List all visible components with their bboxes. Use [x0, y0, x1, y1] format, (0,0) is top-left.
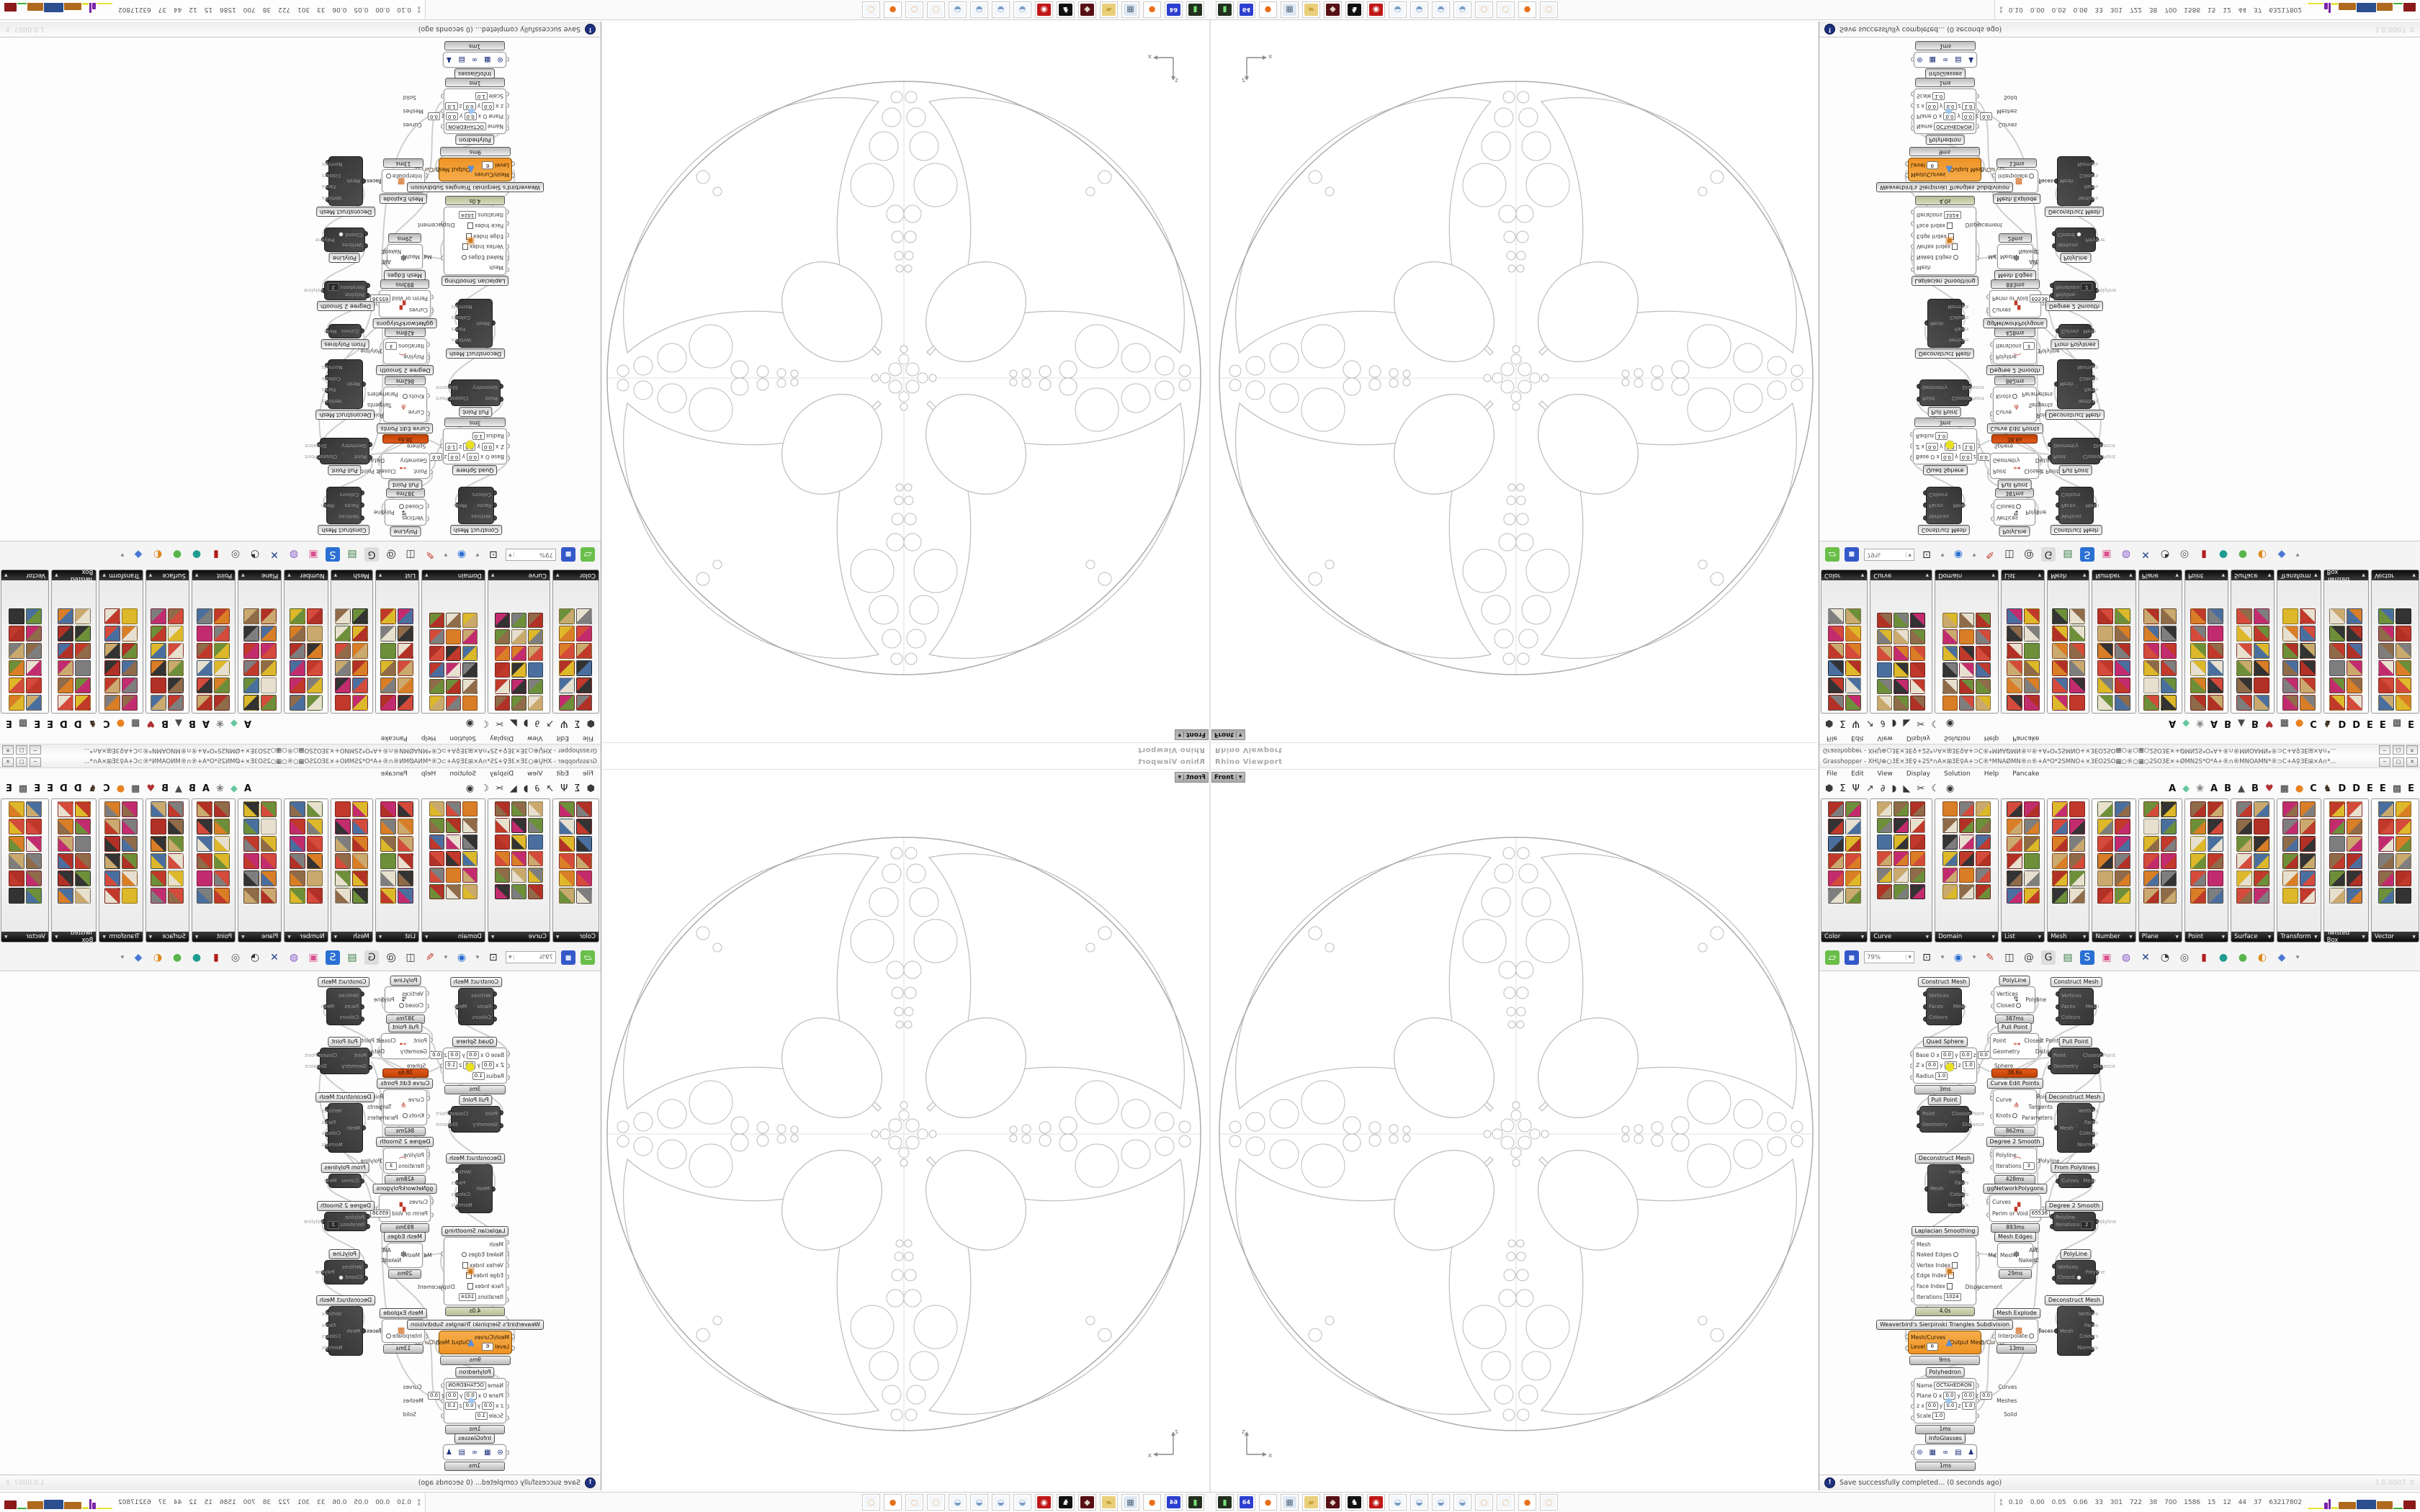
component-icon[interactable]: [214, 801, 230, 817]
component-icon[interactable]: [335, 608, 351, 624]
ribbon-tab-icon-19[interactable]: ▦: [131, 784, 140, 793]
component-icon[interactable]: [58, 608, 73, 624]
component-icon[interactable]: [1828, 836, 1844, 852]
component-icon[interactable]: [398, 819, 413, 834]
component-icon[interactable]: [1845, 626, 1861, 642]
component-icon[interactable]: [2007, 626, 2022, 642]
ribbon-tab-icon-6[interactable]: ◣: [1903, 784, 1910, 793]
component-icon[interactable]: [168, 819, 184, 834]
node-label[interactable]: Degree 2 Smooth: [1986, 365, 2043, 375]
node-label[interactable]: Deconstruct Mesh: [2045, 1092, 2104, 1102]
ribbon-tab-icon-2[interactable]: Ψ: [560, 719, 568, 728]
toggle-dot[interactable]: [399, 1003, 404, 1008]
component-icon[interactable]: [261, 660, 277, 676]
ribbon-tab-icon-26[interactable]: E: [2380, 719, 2386, 728]
ribbon-tab-icon-9[interactable]: ◉: [1946, 784, 1954, 793]
value-chip[interactable]: 3: [385, 343, 397, 351]
value-chip[interactable]: 1.0: [445, 1061, 457, 1069]
component-icon[interactable]: [2007, 608, 2022, 624]
preview-custom-icon[interactable]: ◆: [131, 950, 145, 965]
component-icon[interactable]: [290, 801, 305, 817]
taskbar-app-calculator[interactable]: ▦: [1121, 1494, 1139, 1511]
component-icon[interactable]: [261, 836, 277, 852]
component-icon[interactable]: [2347, 678, 2362, 693]
ribbon-tab-icon-16[interactable]: ▲: [175, 719, 182, 728]
value-chip[interactable]: 1.0: [1963, 443, 1975, 451]
component-icon[interactable]: [2300, 608, 2316, 624]
galapagos-icon[interactable]: ✕: [2138, 950, 2153, 965]
camera-icon[interactable]: ◔: [2158, 950, 2172, 965]
component-icon[interactable]: [462, 868, 478, 883]
component-icon[interactable]: [261, 819, 277, 834]
component-icon[interactable]: [462, 696, 478, 711]
component-icon[interactable]: [243, 801, 259, 817]
menu-item-help[interactable]: Help: [421, 770, 436, 778]
title-bar[interactable]: Grasshopper - XHŲ⊕○3E×3E♀+2S*∩A×⊞3E♀A+⊃C…: [1819, 756, 2420, 768]
ribbon-tab-icon-7[interactable]: ✂: [1917, 719, 1924, 728]
component-icon[interactable]: [1959, 679, 1974, 694]
component-icon[interactable]: [2208, 836, 2223, 852]
component-icon[interactable]: [2208, 801, 2223, 817]
zoom-extents-icon[interactable]: ⊡: [1919, 548, 1934, 562]
component-icon[interactable]: [1976, 646, 1991, 661]
component-icon[interactable]: [1942, 679, 1958, 694]
donut-icon[interactable]: ◎: [228, 548, 243, 562]
component-icon[interactable]: [2024, 801, 2040, 817]
component-icon[interactable]: [2254, 888, 2269, 904]
value-chip[interactable]: 3: [385, 1162, 397, 1170]
component-icon[interactable]: [104, 678, 120, 693]
component-icon[interactable]: [352, 853, 368, 869]
component-icon[interactable]: [446, 613, 461, 628]
component-icon[interactable]: [2329, 888, 2345, 904]
component-icon[interactable]: [2190, 801, 2206, 817]
ribbon-tab-icon-5[interactable]: ◗: [524, 719, 529, 728]
node-label[interactable]: Laplacian Smoothing: [1912, 276, 1979, 286]
component-icon[interactable]: [1877, 662, 1892, 678]
component-icon[interactable]: [26, 801, 42, 817]
component-icon[interactable]: [2161, 888, 2177, 904]
component-icon[interactable]: [168, 695, 184, 711]
infoglasses-icon[interactable]: ▦: [482, 54, 493, 66]
component-icon[interactable]: [168, 660, 184, 676]
component-icon[interactable]: [1942, 851, 1958, 866]
node-label[interactable]: From Polylines: [2051, 1163, 2099, 1173]
component-icon[interactable]: [307, 819, 323, 834]
preview-wire-icon[interactable]: ●: [2236, 548, 2250, 562]
sketch-pen-icon[interactable]: ✎: [1983, 950, 1997, 965]
component-icon[interactable]: [1910, 834, 1925, 850]
node-quad-sphere[interactable]: BaseO x0.0y0.0z0.0Z x0.0y0.0z1.0Radius1.…: [443, 428, 507, 464]
dropdown-caret-icon[interactable]: ▾: [442, 548, 449, 562]
component-icon[interactable]: [1828, 801, 1844, 817]
component-icon[interactable]: [1959, 662, 1974, 678]
balloon-icon[interactable]: ◍: [287, 950, 301, 965]
component-icon[interactable]: [429, 834, 444, 850]
component-icon[interactable]: [2143, 888, 2159, 904]
component-icon[interactable]: [2069, 870, 2085, 886]
component-icon[interactable]: [528, 884, 543, 899]
component-icon[interactable]: [307, 801, 323, 817]
component-icon[interactable]: [2143, 626, 2159, 642]
taskbar-app-paint-4[interactable]: ◒: [1453, 1494, 1471, 1511]
component-icon[interactable]: [2329, 853, 2345, 869]
component-icon[interactable]: [261, 608, 277, 624]
ribbon-tab-icon-14[interactable]: A: [2210, 719, 2218, 728]
ribbon-tab-icon-22[interactable]: ♞: [89, 784, 97, 793]
component-icon[interactable]: [1942, 834, 1958, 850]
component-icon[interactable]: [2254, 836, 2269, 852]
component-icon[interactable]: [335, 801, 351, 817]
component-icon[interactable]: [2378, 853, 2394, 869]
component-icon[interactable]: [58, 801, 73, 817]
palette-panel-label[interactable]: Point▼: [192, 570, 235, 580]
component-icon[interactable]: [2097, 695, 2113, 711]
component-icon[interactable]: [1877, 613, 1892, 628]
component-icon[interactable]: [2161, 870, 2177, 886]
component-icon[interactable]: [528, 801, 543, 816]
ribbon-tab-icon-15[interactable]: B: [2224, 719, 2231, 728]
gha-icon[interactable]: G: [2041, 548, 2056, 562]
taskbar-app-blender-1[interactable]: ◌: [927, 1, 945, 18]
component-icon[interactable]: [2347, 660, 2362, 676]
component-icon[interactable]: [352, 643, 368, 659]
taskbar-app-firefox[interactable]: ●: [1259, 1, 1277, 18]
ribbon-tab-icon-11[interactable]: A: [2169, 784, 2176, 793]
component-icon[interactable]: [1828, 819, 1844, 834]
ribbon-tab-icon-14[interactable]: A: [202, 719, 210, 728]
value-chip[interactable]: 0.0: [1926, 443, 1938, 451]
component-icon[interactable]: [576, 888, 592, 904]
component-icon[interactable]: [1845, 660, 1861, 676]
value-chip[interactable]: 0.0: [1962, 112, 1974, 120]
component-icon[interactable]: [261, 695, 277, 711]
node-label[interactable]: Pull Point: [2058, 1037, 2092, 1047]
component-icon[interactable]: [511, 801, 526, 816]
node-weaverbird-s-sierpinski-triangles-subdivision[interactable]: Mesh/CurvesLevel6Output Mesh/Curves: [1908, 158, 1981, 181]
component-icon[interactable]: [1976, 851, 1991, 866]
component-icon[interactable]: [2143, 801, 2159, 817]
component-icon[interactable]: [1976, 613, 1991, 628]
taskbar-app-drive[interactable]: ▮: [1216, 1494, 1234, 1511]
component-icon[interactable]: [1959, 818, 1974, 833]
component-icon[interactable]: [380, 870, 396, 886]
component-icon[interactable]: [398, 626, 413, 642]
taskbar-app-calculator[interactable]: ▦: [1121, 1, 1139, 18]
palette-panel-label[interactable]: Plane▼: [238, 932, 281, 942]
component-icon[interactable]: [2347, 695, 2362, 711]
gha-icon[interactable]: G: [2041, 950, 2056, 965]
galapagos-icon[interactable]: ✕: [267, 950, 282, 965]
component-icon[interactable]: [2097, 870, 2113, 886]
component-icon[interactable]: [214, 819, 230, 834]
component-icon[interactable]: [58, 888, 73, 904]
component-icon[interactable]: [1894, 613, 1909, 628]
component-icon[interactable]: [2396, 608, 2411, 624]
component-icon[interactable]: [75, 678, 91, 693]
component-icon[interactable]: [1942, 646, 1958, 661]
component-icon[interactable]: [1894, 851, 1909, 866]
value-chip[interactable]: 0.0: [1962, 1392, 1974, 1400]
component-icon[interactable]: [2378, 888, 2394, 904]
component-icon[interactable]: [2052, 870, 2068, 886]
node-label[interactable]: Mesh Explode: [380, 1308, 427, 1318]
component-icon[interactable]: [2190, 888, 2206, 904]
menu-item-edit[interactable]: Edit: [1851, 770, 1863, 778]
component-icon[interactable]: [2190, 626, 2206, 642]
rhino-viewport[interactable]: Rhino Viewport Front ▼ x z: [1210, 20, 1819, 756]
component-icon[interactable]: [528, 646, 543, 661]
node-label[interactable]: Weaverbird's Sierpinski Triangles Subdiv…: [407, 182, 544, 192]
maximize-button[interactable]: □: [16, 757, 27, 767]
component-icon[interactable]: [2396, 888, 2411, 904]
infoglasses-icon[interactable]: ⊜: [1914, 1446, 1925, 1458]
ribbon-tab-icon-24[interactable]: D: [2352, 719, 2360, 728]
taskbar-app-blender-2[interactable]: ◌: [1497, 1, 1515, 18]
component-icon[interactable]: [2378, 643, 2394, 659]
component-icon[interactable]: [335, 819, 351, 834]
component-icon[interactable]: [2378, 836, 2394, 852]
component-icon[interactable]: [2396, 678, 2411, 693]
open-file-icon[interactable]: ▱: [1825, 950, 1839, 965]
palette-panel-label[interactable]: Domain▼: [422, 932, 485, 942]
component-icon[interactable]: [26, 643, 42, 659]
taskbar-app-settings[interactable]: ◉: [1035, 1, 1053, 18]
menu-item-file[interactable]: File: [583, 770, 593, 778]
component-icon[interactable]: [122, 643, 138, 659]
menu-item-view[interactable]: View: [527, 734, 542, 742]
preview-off-icon[interactable]: ●: [2216, 950, 2231, 965]
component-icon[interactable]: [26, 626, 42, 642]
component-icon[interactable]: [2190, 853, 2206, 869]
component-icon[interactable]: [168, 678, 184, 693]
sketch-pen-icon[interactable]: ✎: [423, 548, 437, 562]
node-label[interactable]: Pull Point: [459, 407, 493, 417]
node-label[interactable]: Laplacian Smoothing: [442, 1226, 509, 1236]
component-icon[interactable]: [576, 853, 592, 869]
node-label[interactable]: Curve Edit Points: [1986, 1079, 2043, 1089]
value-chip[interactable]: 1024: [1944, 1293, 1961, 1301]
component-icon[interactable]: [2115, 626, 2130, 642]
infoglasses-icon[interactable]: ♟: [1966, 1446, 1976, 1458]
component-icon[interactable]: [243, 836, 259, 852]
component-icon[interactable]: [290, 660, 305, 676]
node-weaverbird-s-sierpinski-triangles-subdivision[interactable]: Mesh/CurvesLevel6Output Mesh/Curves: [439, 158, 512, 181]
preview-off-icon[interactable]: ●: [189, 548, 204, 562]
component-icon[interactable]: [429, 613, 444, 628]
component-icon[interactable]: [2378, 660, 2394, 676]
toggle-dot[interactable]: [403, 395, 408, 400]
component-icon[interactable]: [151, 660, 166, 676]
taskbar-app-settings[interactable]: ◉: [1367, 1, 1385, 18]
at-icon[interactable]: @: [2022, 548, 2036, 562]
component-icon[interactable]: [352, 660, 368, 676]
ribbon-tab-icon-5[interactable]: ◗: [1891, 719, 1896, 728]
ribbon-tab-icon-16[interactable]: ▲: [2238, 784, 2245, 793]
component-icon[interactable]: [1976, 679, 1991, 694]
taskbar-app-blender-1[interactable]: ◌: [1475, 1, 1493, 18]
search-icon[interactable]: S: [2080, 548, 2094, 562]
value-box[interactable]: [1947, 1283, 1953, 1290]
preview-eye-icon[interactable]: ◉: [454, 548, 469, 562]
maximize-button[interactable]: □: [16, 746, 27, 755]
component-icon[interactable]: [151, 801, 166, 817]
component-icon[interactable]: [2347, 853, 2362, 869]
component-icon[interactable]: [2378, 870, 2394, 886]
value-box[interactable]: [467, 1283, 473, 1290]
node-label[interactable]: InfoGlasses: [454, 68, 495, 78]
donut-icon[interactable]: ◎: [2177, 548, 2192, 562]
component-icon[interactable]: [243, 819, 259, 834]
component-icon[interactable]: [1976, 696, 1991, 711]
component-icon[interactable]: [307, 853, 323, 869]
component-icon[interactable]: [104, 853, 120, 869]
menu-item-pancake[interactable]: Pancake: [2012, 770, 2039, 778]
component-icon[interactable]: [261, 853, 277, 869]
value-chip[interactable]: 1.0: [1962, 1402, 1974, 1410]
component-icon[interactable]: [335, 836, 351, 852]
component-icon[interactable]: [2024, 608, 2040, 624]
component-icon[interactable]: [2396, 626, 2411, 642]
ribbon-tab-icon-11[interactable]: A: [244, 784, 251, 793]
component-icon[interactable]: [528, 662, 543, 678]
component-icon[interactable]: [197, 608, 212, 624]
taskbar-app-firefox-2[interactable]: ●: [884, 1494, 902, 1511]
component-icon[interactable]: [151, 853, 166, 869]
component-icon[interactable]: [197, 853, 212, 869]
component-icon[interactable]: [2300, 678, 2316, 693]
node-label[interactable]: Pull Point: [389, 1022, 423, 1032]
palette-panel-label[interactable]: Point▼: [192, 932, 235, 942]
component-icon[interactable]: [2396, 870, 2411, 886]
component-icon[interactable]: [495, 818, 510, 833]
value-chip[interactable]: 0.0: [1926, 1402, 1938, 1410]
component-icon[interactable]: [290, 608, 305, 624]
node-label[interactable]: Construct Mesh: [318, 977, 369, 987]
ribbon-tab-icon-13[interactable]: ❀: [216, 784, 224, 793]
help-box-icon[interactable]: ▣: [306, 548, 321, 562]
value-chip[interactable]: 0.0: [1978, 453, 1990, 461]
component-icon[interactable]: [168, 801, 184, 817]
component-icon[interactable]: [75, 695, 91, 711]
value-chip[interactable]: 6: [1927, 1343, 1938, 1351]
node-label[interactable]: Degree 2 Smooth: [1986, 1137, 2043, 1147]
component-icon[interactable]: [2007, 819, 2022, 834]
component-icon[interactable]: [2161, 853, 2177, 869]
palette-panel-label[interactable]: Transform▼: [2277, 570, 2320, 580]
component-icon[interactable]: [2161, 608, 2177, 624]
value-chip[interactable]: 0.0: [448, 1051, 460, 1059]
taskbar-app-blender-1[interactable]: ◌: [1475, 1494, 1493, 1511]
gh-canvas[interactable]: Construct MeshVerticesFacesColoursMesh⁙Q…: [0, 37, 601, 541]
component-icon[interactable]: [2052, 608, 2068, 624]
palette-panel-label[interactable]: Number▼: [284, 570, 327, 580]
taskbar-app-paint-4[interactable]: ◒: [949, 1, 967, 18]
value-chip[interactable]: 2: [2081, 1221, 2092, 1229]
component-icon[interactable]: [576, 608, 592, 624]
component-icon[interactable]: [9, 678, 24, 693]
component-icon[interactable]: [495, 851, 510, 866]
taskbar-app-media[interactable]: ◆: [1324, 1, 1342, 18]
component-icon[interactable]: [1959, 834, 1974, 850]
component-icon[interactable]: [26, 678, 42, 693]
menu-item-display[interactable]: Display: [1906, 770, 1930, 778]
component-icon[interactable]: [151, 608, 166, 624]
ribbon-tab-icon-23[interactable]: D: [2338, 784, 2346, 793]
palette-panel-label[interactable]: Domain▼: [1935, 570, 1998, 580]
component-icon[interactable]: [380, 643, 396, 659]
component-icon[interactable]: [290, 836, 305, 852]
dropdown-caret-icon[interactable]: ▾: [474, 548, 481, 562]
value-chip[interactable]: 1.0: [445, 102, 457, 110]
palette-panel-label[interactable]: List▼: [2002, 570, 2044, 580]
component-icon[interactable]: [2378, 608, 2394, 624]
galapagos-icon[interactable]: ✕: [267, 548, 282, 562]
infoglasses-icon[interactable]: ♟: [444, 1446, 454, 1458]
component-icon[interactable]: [576, 626, 592, 642]
component-icon[interactable]: [576, 678, 592, 693]
taskbar-app-gimp[interactable]: ♞: [1345, 1, 1363, 18]
component-icon[interactable]: [197, 678, 212, 693]
component-icon[interactable]: [2347, 608, 2362, 624]
component-icon[interactable]: [462, 629, 478, 644]
component-icon[interactable]: [576, 870, 592, 886]
infoglasses-icon[interactable]: ∞: [1940, 1446, 1951, 1458]
component-icon[interactable]: [2208, 608, 2223, 624]
taskbar-app-paint-2[interactable]: ◒: [1410, 1494, 1428, 1511]
ribbon-tab-icon-0[interactable]: ⬢: [587, 719, 595, 728]
node-label[interactable]: ggNetworkPolygons: [372, 1184, 436, 1194]
component-icon[interactable]: [2208, 678, 2223, 693]
node-label[interactable]: Weaverbird's Sierpinski Triangles Subdiv…: [1876, 1320, 2013, 1330]
component-icon[interactable]: [2143, 870, 2159, 886]
component-icon[interactable]: [1894, 868, 1909, 883]
node-label[interactable]: Degree 2 Smooth: [2045, 301, 2103, 311]
component-icon[interactable]: [511, 646, 526, 661]
component-icon[interactable]: [2024, 870, 2040, 886]
component-icon[interactable]: [2347, 870, 2362, 886]
taskbar-app-floppy-64[interactable]: 64: [1237, 1494, 1255, 1511]
component-icon[interactable]: [1976, 834, 1991, 850]
component-icon[interactable]: [2024, 643, 2040, 659]
ribbon-tab-icon-25[interactable]: E: [47, 784, 53, 793]
rhino-viewport[interactable]: Rhino Viewport Front ▼ x z: [1210, 756, 1819, 1492]
node-label[interactable]: Laplacian Smoothing: [1912, 1226, 1979, 1236]
infoglasses-icon[interactable]: ▤: [1953, 54, 1963, 66]
component-icon[interactable]: [2378, 695, 2394, 711]
infoglasses-icon[interactable]: ∞: [470, 54, 480, 66]
palette-panel-label[interactable]: Surface▼: [2231, 932, 2274, 942]
component-icon[interactable]: [398, 801, 413, 817]
value-chip[interactable]: 0.0: [1980, 112, 1992, 120]
value-chip[interactable]: 2: [328, 1221, 339, 1229]
node-label[interactable]: Deconstruct Mesh: [316, 207, 375, 217]
node-label[interactable]: Degree 2 Smooth: [317, 301, 375, 311]
component-icon[interactable]: [1976, 884, 1991, 899]
component-icon[interactable]: [1976, 629, 1991, 644]
menu-item-pancake[interactable]: Pancake: [381, 734, 408, 742]
component-icon[interactable]: [2282, 695, 2298, 711]
value-chip[interactable]: 0.0: [482, 1061, 494, 1069]
component-icon[interactable]: [528, 629, 543, 644]
toggle-dot[interactable]: [403, 1113, 408, 1118]
ribbon-tab-icon-8[interactable]: ☾: [480, 719, 489, 728]
component-icon[interactable]: [495, 679, 510, 694]
component-icon[interactable]: [429, 696, 444, 711]
component-icon[interactable]: [2208, 870, 2223, 886]
component-icon[interactable]: [2254, 626, 2269, 642]
component-icon[interactable]: [2069, 888, 2085, 904]
